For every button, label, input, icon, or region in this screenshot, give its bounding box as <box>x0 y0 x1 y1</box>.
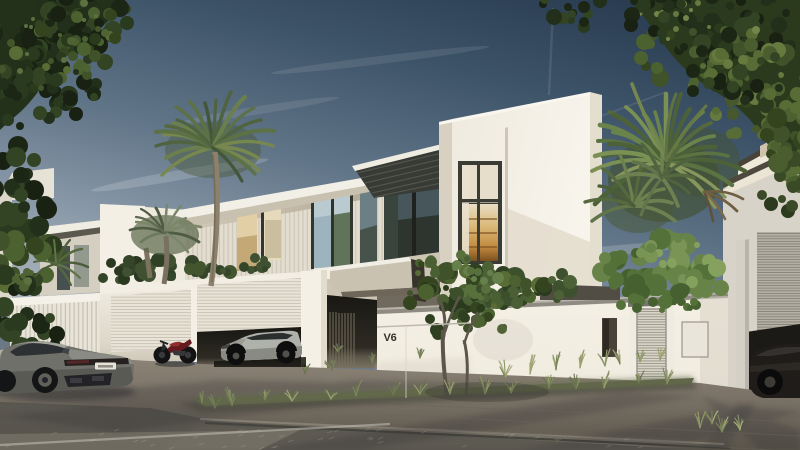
svg-text:V6: V6 <box>383 332 396 344</box>
